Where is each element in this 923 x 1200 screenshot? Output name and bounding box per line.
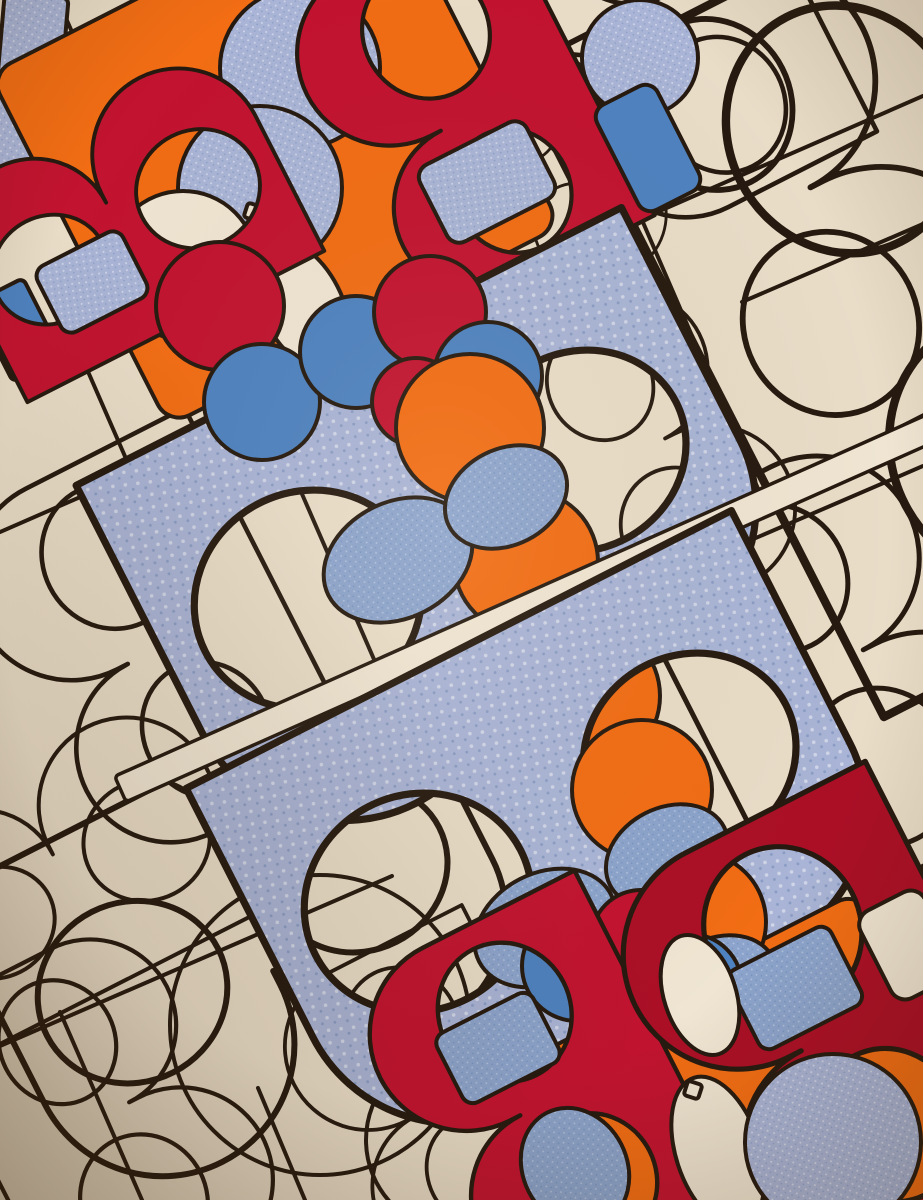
cream-diamond-node-bottom (684, 1081, 703, 1100)
artwork-container (0, 0, 923, 1200)
artwork-photo (0, 0, 923, 1200)
